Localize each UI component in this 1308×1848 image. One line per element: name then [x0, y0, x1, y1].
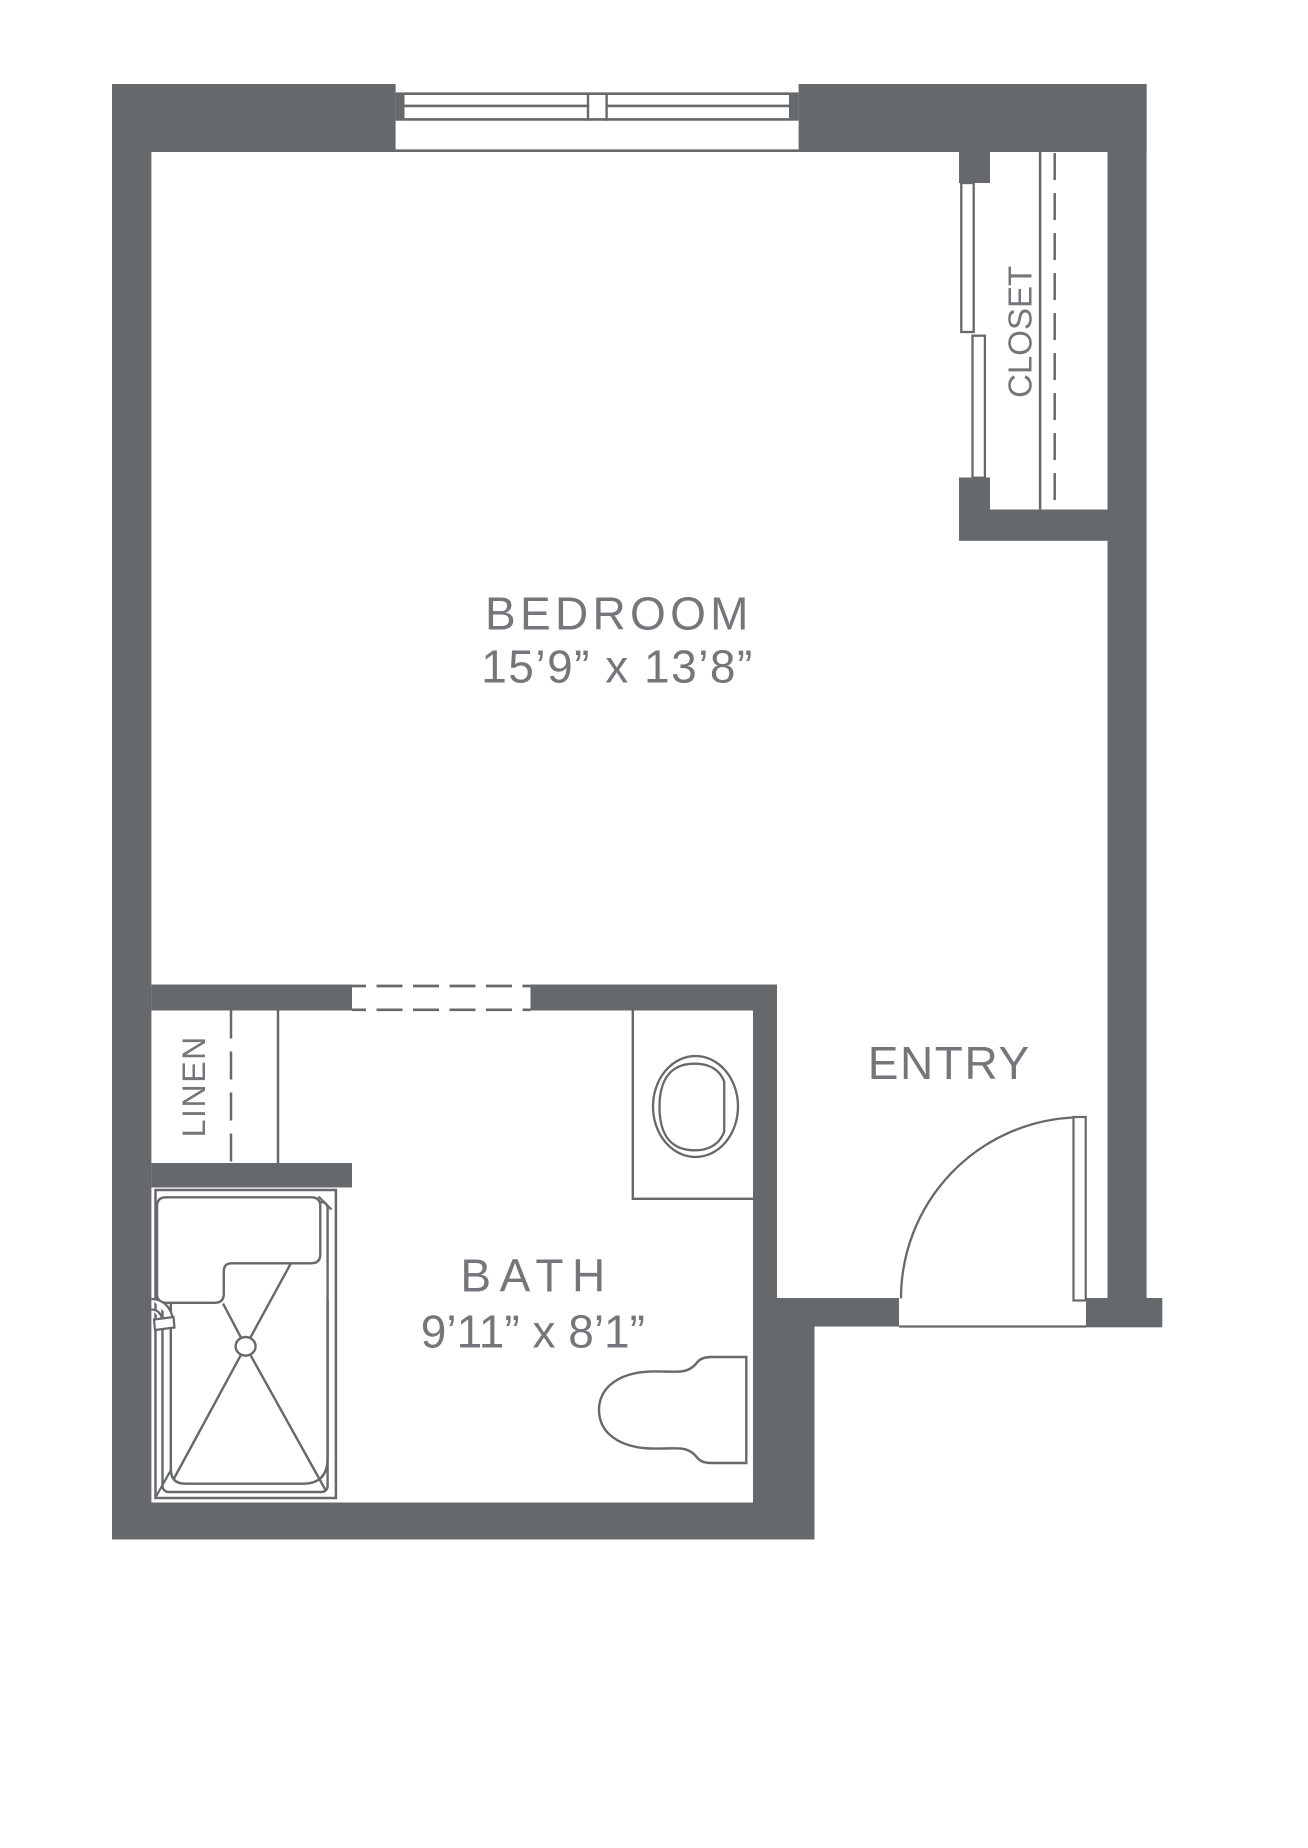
- svg-text:BEDROOM: BEDROOM: [485, 588, 753, 640]
- svg-text:BATH: BATH: [460, 1249, 613, 1301]
- svg-text:9’11” x 8’1”: 9’11” x 8’1”: [421, 1306, 645, 1358]
- svg-text:ENTRY: ENTRY: [868, 1037, 1031, 1089]
- svg-text:CLOSET: CLOSET: [1002, 266, 1039, 398]
- svg-text:15’9” x 13’8”: 15’9” x 13’8”: [481, 641, 754, 693]
- svg-text:LINEN: LINEN: [176, 1035, 212, 1137]
